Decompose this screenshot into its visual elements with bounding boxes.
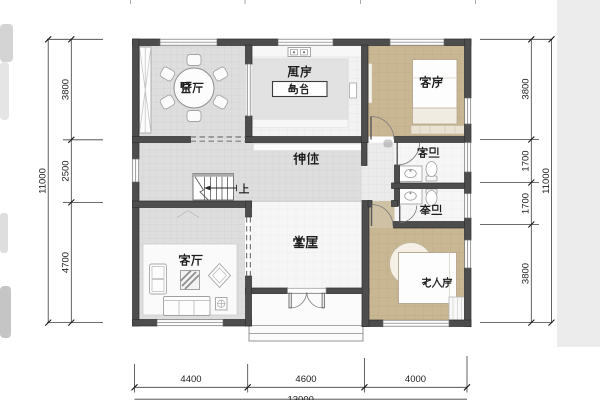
svg-text:3800: 3800 bbox=[521, 263, 532, 284]
svg-text:2500: 2500 bbox=[61, 160, 72, 181]
svg-text:3800: 3800 bbox=[61, 79, 72, 100]
svg-text:11000: 11000 bbox=[541, 168, 552, 194]
svg-text:4700: 4700 bbox=[61, 252, 72, 273]
svg-text:1700: 1700 bbox=[521, 193, 532, 214]
svg-text:4400: 4400 bbox=[180, 374, 201, 385]
svg-text:1700: 1700 bbox=[521, 150, 532, 171]
svg-text:4600: 4600 bbox=[295, 374, 316, 385]
svg-text:13000: 13000 bbox=[287, 395, 313, 400]
svg-text:4000: 4000 bbox=[405, 374, 426, 385]
svg-text:3800: 3800 bbox=[521, 78, 532, 99]
svg-text:11000: 11000 bbox=[38, 168, 49, 194]
